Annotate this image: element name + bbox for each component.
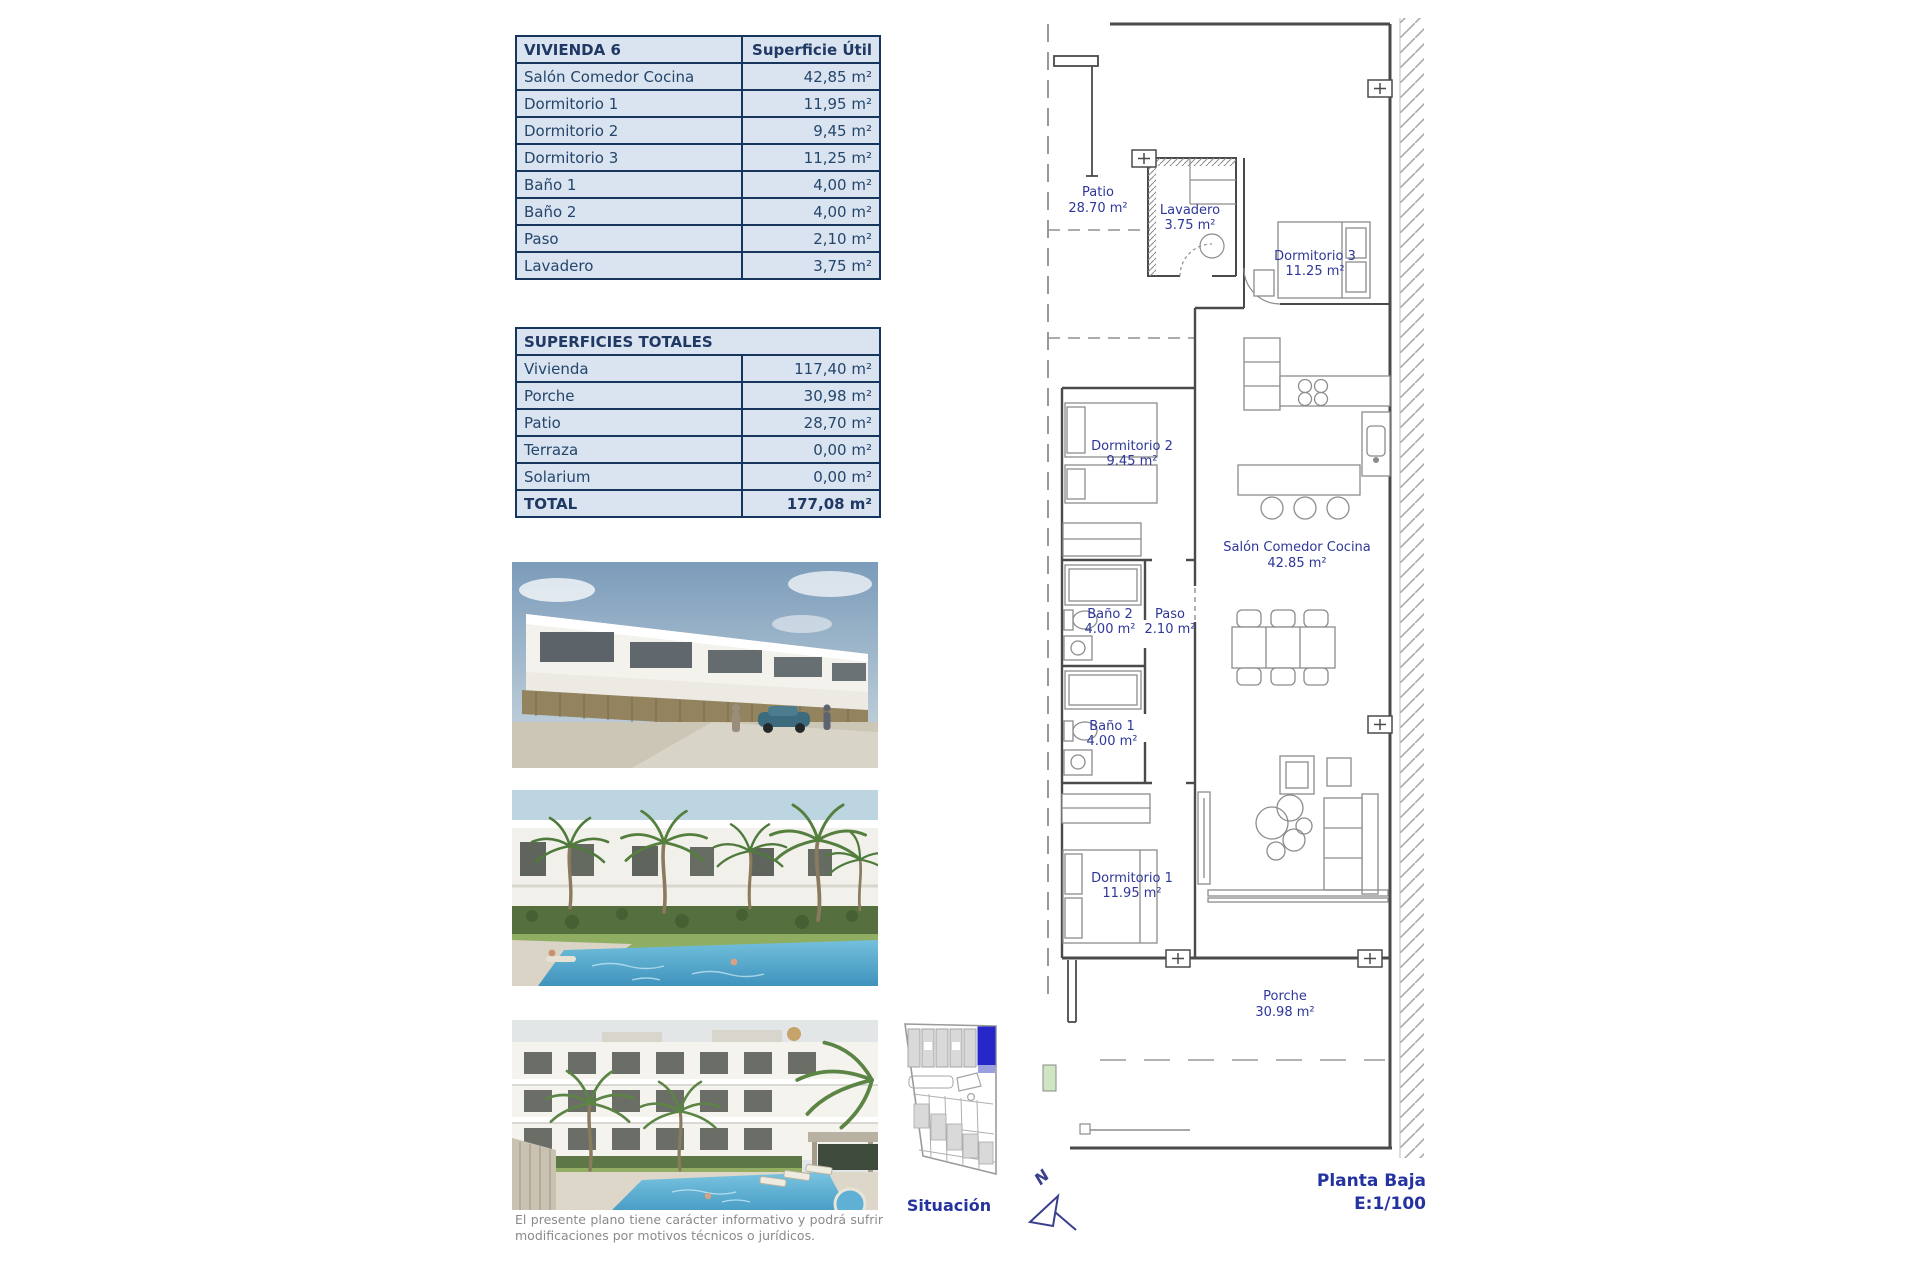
- table-row: Baño 14,00 m²: [516, 171, 880, 198]
- row-label: Dormitorio 1: [516, 90, 742, 117]
- row-label: Dormitorio 2: [516, 117, 742, 144]
- svg-text:4.00 m²: 4.00 m²: [1087, 734, 1138, 749]
- row-label: Porche: [516, 382, 742, 409]
- table-row: Lavadero3,75 m²: [516, 252, 880, 279]
- totals-table-header-row: SUPERFICIES TOTALES: [516, 328, 880, 355]
- row-label: Baño 2: [516, 198, 742, 225]
- svg-text:11.25 m²: 11.25 m²: [1285, 264, 1344, 279]
- row-value: 3,75 m²: [742, 252, 880, 279]
- row-value: 42,85 m²: [742, 63, 880, 90]
- floor-plan-graphic: Patio 28.70 m² Lavadero 3.75 m² Dormitor…: [1040, 8, 1430, 1170]
- row-label: Salón Comedor Cocina: [516, 63, 742, 90]
- row-label: Lavadero: [516, 252, 742, 279]
- party-wall-hatch: [1400, 18, 1424, 1158]
- room-label-lavadero: Lavadero: [1160, 203, 1220, 218]
- totals-table: SUPERFICIES TOTALES Vivienda117,40 m² Po…: [515, 327, 881, 518]
- plan-scale: E:1/100: [1248, 1193, 1426, 1216]
- render-photo-building-pool: [512, 1020, 878, 1210]
- street-render-graphic: [512, 562, 878, 768]
- pool-render-graphic: [512, 790, 878, 986]
- unit-table-title: VIVIENDA 6: [516, 36, 742, 63]
- row-value: 117,40 m²: [742, 355, 880, 382]
- room-label-bano-1: Baño 1: [1089, 719, 1134, 734]
- site-map-caption: Situación: [888, 1196, 1010, 1215]
- room-label-salon: Salón Comedor Cocina: [1223, 540, 1371, 555]
- room-label-dormitorio-3: Dormitorio 3: [1274, 249, 1356, 264]
- room-label-dormitorio-1: Dormitorio 1: [1091, 871, 1173, 886]
- svg-text:2.10 m²: 2.10 m²: [1145, 622, 1196, 637]
- table-row: Dormitorio 111,95 m²: [516, 90, 880, 117]
- svg-text:28.70 m²: 28.70 m²: [1068, 201, 1127, 216]
- svg-text:42.85 m²: 42.85 m²: [1267, 556, 1326, 571]
- table-row: Patio28,70 m²: [516, 409, 880, 436]
- room-label-bano-2: Baño 2: [1087, 607, 1132, 622]
- row-value: 9,45 m²: [742, 117, 880, 144]
- row-label: Vivienda: [516, 355, 742, 382]
- unit-areas-table: VIVIENDA 6 Superficie Útil Salón Comedor…: [515, 35, 881, 280]
- highlighted-unit-marker: [978, 1027, 995, 1065]
- total-label: TOTAL: [516, 490, 742, 517]
- plan-title: Planta Baja: [1248, 1170, 1426, 1193]
- row-label: Patio: [516, 409, 742, 436]
- row-label: Solarium: [516, 463, 742, 490]
- table-row: Porche30,98 m²: [516, 382, 880, 409]
- plan-sheet-page: VIVIENDA 6 Superficie Útil Salón Comedor…: [0, 0, 1920, 1280]
- table-row: Dormitorio 29,45 m²: [516, 117, 880, 144]
- site-map-graphic: [893, 1012, 1005, 1192]
- table-row: Terraza0,00 m²: [516, 436, 880, 463]
- north-arrow-graphic: N: [1022, 1162, 1092, 1246]
- table-row: Paso2,10 m²: [516, 225, 880, 252]
- row-label: Baño 1: [516, 171, 742, 198]
- room-label-porche: Porche: [1263, 989, 1307, 1004]
- row-value: 28,70 m²: [742, 409, 880, 436]
- room-label-paso: Paso: [1155, 607, 1185, 622]
- row-value: 2,10 m²: [742, 225, 880, 252]
- svg-text:3.75 m²: 3.75 m²: [1165, 218, 1216, 233]
- total-value: 177,08 m²: [742, 490, 880, 517]
- row-value: 0,00 m²: [742, 436, 880, 463]
- room-label-patio: Patio: [1082, 185, 1114, 200]
- totals-table-title: SUPERFICIES TOTALES: [516, 328, 880, 355]
- row-value: 30,98 m²: [742, 382, 880, 409]
- legal-disclaimer-text: El presente plano tiene carácter informa…: [515, 1212, 883, 1245]
- building-render-graphic: [512, 1020, 878, 1210]
- row-value: 11,25 m²: [742, 144, 880, 171]
- pedestrian-figure: [823, 704, 830, 730]
- svg-text:9.45 m²: 9.45 m²: [1107, 454, 1158, 469]
- row-value: 0,00 m²: [742, 463, 880, 490]
- table-row: Dormitorio 311,25 m²: [516, 144, 880, 171]
- total-row: TOTAL177,08 m²: [516, 490, 880, 517]
- row-value: 11,95 m²: [742, 90, 880, 117]
- row-label: Terraza: [516, 436, 742, 463]
- porch-planter: [1043, 1065, 1056, 1091]
- svg-text:30.98 m²: 30.98 m²: [1255, 1005, 1314, 1020]
- floor-plan: Patio 28.70 m² Lavadero 3.75 m² Dormitor…: [1040, 8, 1430, 1170]
- site-location-map: [893, 1012, 1005, 1192]
- row-value: 4,00 m²: [742, 198, 880, 225]
- unit-table-header-row: VIVIENDA 6 Superficie Útil: [516, 36, 880, 63]
- north-arrow: N: [1022, 1162, 1092, 1246]
- table-row: Salón Comedor Cocina42,85 m²: [516, 63, 880, 90]
- row-value: 4,00 m²: [742, 171, 880, 198]
- svg-text:11.95 m²: 11.95 m²: [1102, 886, 1161, 901]
- render-photo-pool-view: [512, 790, 878, 986]
- render-photo-street-view: [512, 562, 878, 768]
- svg-text:4.00 m²: 4.00 m²: [1085, 622, 1136, 637]
- table-row: Baño 24,00 m²: [516, 198, 880, 225]
- row-label: Paso: [516, 225, 742, 252]
- plan-title-block: Planta Baja E:1/100: [1248, 1170, 1426, 1216]
- unit-table-units-header: Superficie Útil: [742, 36, 880, 63]
- table-row: Vivienda117,40 m²: [516, 355, 880, 382]
- row-label: Dormitorio 3: [516, 144, 742, 171]
- table-row: Solarium0,00 m²: [516, 463, 880, 490]
- room-label-dormitorio-2: Dormitorio 2: [1091, 439, 1173, 454]
- pedestrian-figure: [732, 704, 740, 732]
